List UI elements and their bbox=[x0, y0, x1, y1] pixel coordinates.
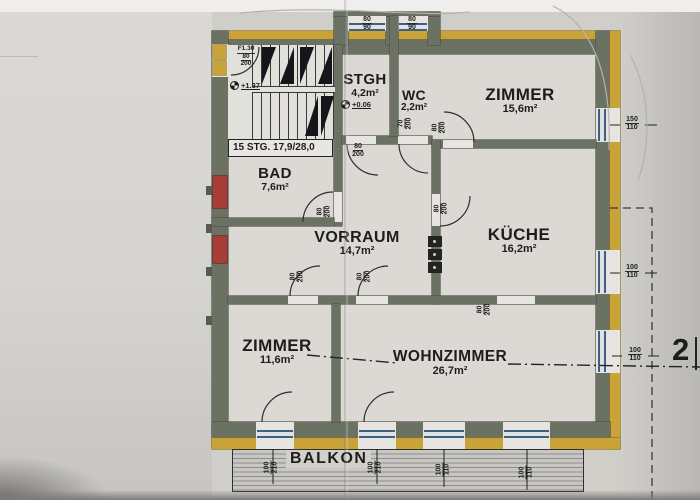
kueche-window-glazing bbox=[598, 251, 606, 293]
stair-landing bbox=[252, 86, 335, 93]
dim-wc-window: 8090 bbox=[399, 16, 425, 31]
dim-bad-door: 80200 bbox=[317, 199, 332, 225]
dim-stgh-window: 8090 bbox=[354, 16, 380, 31]
wall-east bbox=[596, 31, 610, 445]
chimney-2 bbox=[213, 236, 227, 263]
room-label-zimmer-sw: ZIMMER 11,6m² bbox=[223, 337, 331, 367]
room-label-bad: BAD 7,6m² bbox=[240, 166, 310, 194]
section-number: 2 bbox=[672, 334, 689, 365]
dim-zimmer-ne-door: 80200 bbox=[432, 115, 447, 141]
insulation-north bbox=[212, 31, 612, 40]
entrance-block-2 bbox=[213, 61, 226, 75]
dim-kueche-door: 80200 bbox=[434, 196, 449, 222]
dim-zimmer-sw-door: 80200 bbox=[290, 264, 305, 290]
level-symbol bbox=[230, 81, 239, 90]
wohnzimmer-door-gap bbox=[356, 296, 388, 304]
dim-balkon-door-1: 100210 bbox=[264, 455, 279, 481]
room-label-kueche: KÜCHE 16,2m² bbox=[473, 226, 565, 256]
dim-zimmer-ne-window: 150110 bbox=[619, 116, 645, 131]
wall-tie-1 bbox=[206, 186, 212, 195]
zimmer-ne-door-gap bbox=[443, 140, 473, 148]
wall-zimmer-wohnzimmer bbox=[332, 304, 340, 422]
dim-wohnzimmer-door: 80200 bbox=[357, 264, 372, 290]
balkon-door-2-glazing bbox=[359, 430, 395, 438]
room-label-vorraum: VORRAUM 14,7m² bbox=[303, 229, 411, 258]
kueche-flue-1 bbox=[428, 236, 442, 247]
dim-balkon-window-2: 100110 bbox=[519, 460, 534, 486]
paper-bottom-shadow bbox=[0, 490, 700, 500]
zimmer-sw-door-gap bbox=[288, 296, 318, 304]
paper-mark bbox=[0, 56, 38, 57]
dim-kueche-window: 100110 bbox=[619, 264, 645, 279]
wohnzimmer-window-glazing bbox=[598, 331, 606, 372]
level-marker-stair: +1.37 bbox=[230, 81, 260, 90]
dim-stgh-door: 80200 bbox=[345, 143, 371, 158]
room-label-wohnzimmer: WOHNZIMMER 26,7m² bbox=[390, 349, 510, 378]
wall-tie-3 bbox=[206, 267, 212, 276]
dim-entrance-door: F1.30 80 200 bbox=[233, 46, 259, 68]
dim-wc-door: 70200 bbox=[398, 111, 413, 137]
wall-tie-4 bbox=[206, 316, 212, 325]
zimmer-ne-window-glazing bbox=[598, 109, 606, 141]
wc-door-gap bbox=[398, 136, 428, 144]
dim-kueche-opening: 80200 bbox=[477, 297, 492, 323]
dim-balkon-door-2: 100210 bbox=[368, 455, 383, 481]
balkon-window-2-glazing bbox=[504, 430, 549, 438]
bad-door-gap bbox=[334, 192, 342, 222]
kueche-flue-2 bbox=[428, 249, 442, 260]
stair-note: 15 STG. 17,9/28,0 bbox=[228, 139, 333, 157]
chimney-1 bbox=[213, 176, 227, 208]
balkon-window-1-glazing bbox=[424, 430, 464, 438]
dim-wohnzimmer-window: 100110 bbox=[622, 347, 648, 362]
wall-vorraum-south bbox=[228, 296, 596, 304]
paper-margin-right bbox=[620, 0, 700, 500]
room-label-zimmer-ne: ZIMMER 15,6m² bbox=[465, 86, 575, 116]
section-tick bbox=[695, 337, 697, 370]
paper-top-band bbox=[0, 0, 700, 12]
insulation-east bbox=[610, 31, 620, 449]
wall-bump-pillar-3 bbox=[428, 12, 440, 45]
balkon-label: BALKON bbox=[286, 450, 371, 468]
kueche-opening-gap bbox=[497, 296, 535, 304]
entrance-block-1 bbox=[213, 45, 226, 59]
floor-plan-scan: 15 STG. 17,9/28,0 BALKON bbox=[0, 0, 700, 500]
paper-fold bbox=[344, 0, 348, 500]
kueche-flue-3 bbox=[428, 262, 442, 273]
dim-balkon-window-1: 100110 bbox=[436, 457, 451, 483]
paper-margin-left bbox=[0, 0, 212, 500]
balkon-door-1-glazing bbox=[257, 430, 293, 438]
